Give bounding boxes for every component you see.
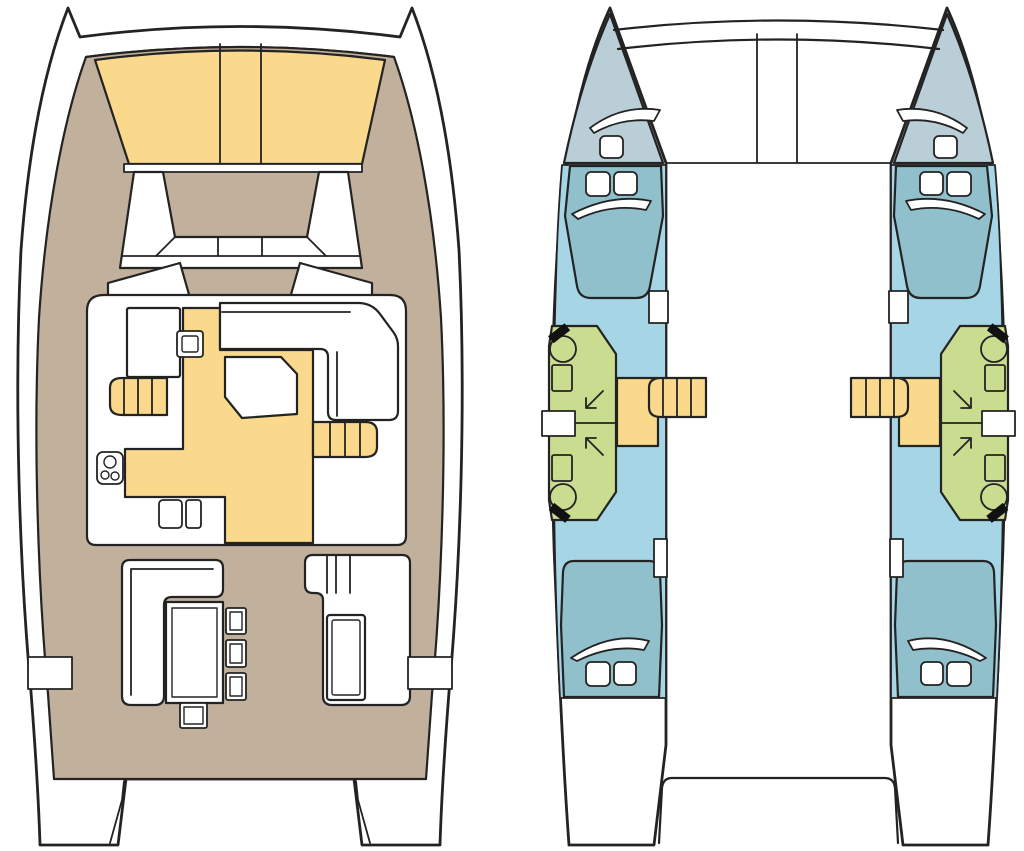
galley-counter xyxy=(127,308,180,377)
hull-plan-view xyxy=(542,8,1015,845)
fore-bed-pillow-1 xyxy=(586,172,610,196)
crossbeam-arc-upper xyxy=(614,21,943,31)
port-hull xyxy=(542,8,706,845)
aft-cabin-bed xyxy=(561,561,662,697)
side-gate-starboard xyxy=(408,657,452,689)
doorway-notch-aft xyxy=(654,539,667,577)
floorplan-svg xyxy=(0,0,1024,851)
vanity xyxy=(542,411,575,436)
side-gate-port xyxy=(28,657,72,689)
stove-burner-large xyxy=(104,456,116,468)
washbasin-aft xyxy=(552,455,572,481)
stove-burner-small-1 xyxy=(101,471,109,479)
catamaran-floorplan-canvas xyxy=(0,0,1024,851)
aft-bed-pillow-1 xyxy=(586,662,610,686)
deck-plan-view xyxy=(18,8,462,845)
starboard-hull xyxy=(851,8,1015,845)
crossbeam-arc-lower xyxy=(618,40,939,50)
washbasin-fore xyxy=(552,365,572,391)
forepeak-hatch xyxy=(600,136,623,158)
cockpit-table xyxy=(166,602,223,703)
crossbeam-center-column xyxy=(757,34,797,163)
aft-bed-pillow-2 xyxy=(614,662,636,685)
stove-burner-small-2 xyxy=(111,472,119,480)
fore-bed-pillow-2 xyxy=(614,172,637,195)
saloon-table xyxy=(225,357,297,418)
stern-platform xyxy=(659,778,898,843)
doorway-notch-fore xyxy=(649,291,668,323)
sink-bowl xyxy=(182,336,198,352)
fridge-box-2 xyxy=(186,500,201,528)
bow-trampoline xyxy=(95,51,385,165)
trampoline-aft-beam xyxy=(124,164,362,172)
fridge-box-1 xyxy=(159,500,182,528)
